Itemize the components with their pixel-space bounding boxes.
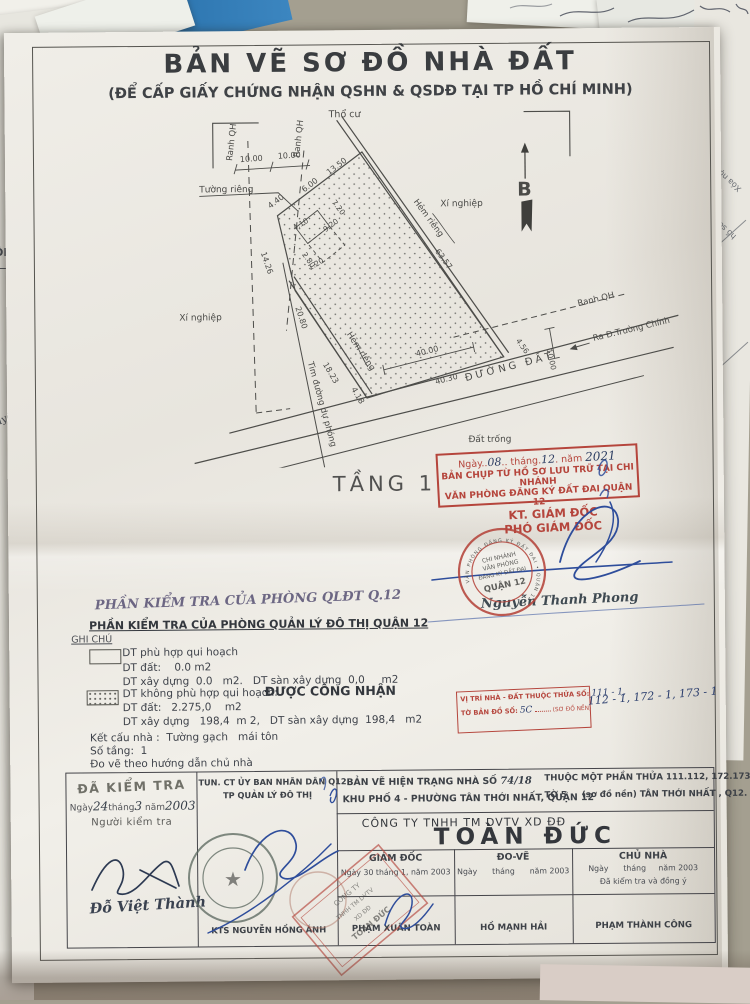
page-title: BẢN VẼ SƠ ĐỒ NHÀ ĐẤT: [34, 45, 706, 81]
inspector-name: Đỗ Việt Thành: [89, 893, 207, 917]
photo-of-land-survey-document: { "colors": {"stamp_red":"#b5453c","ink_…: [0, 0, 750, 1000]
north-label: B: [517, 179, 532, 201]
nguoi-kiem-tra-label: Người kiểm tra: [72, 817, 192, 829]
owner-name: PHẠM THÀNH CÔNG: [573, 920, 715, 931]
checked-day-handwritten: 24: [93, 799, 108, 813]
signature-table: ĐÃ KIỂM TRA Ngày24tháng3 năm2003 Người k…: [65, 767, 716, 949]
checked-month-handwritten: 3: [134, 799, 142, 813]
stamp-date-ngay: Ngày: [458, 458, 482, 470]
label-xi-nghiep-right: Xí nghiệp: [440, 198, 483, 209]
checked-year-handwritten: 2003: [165, 798, 196, 812]
svg-text:Ranh QH: Ranh QH: [577, 291, 616, 309]
bottom-right-paper: [540, 964, 750, 1004]
svg-text:10.00: 10.00: [240, 154, 263, 164]
label-dat-trong: Đất trống: [468, 434, 511, 445]
archive-stamp-box: Ngày..08.. tháng.12. năm 2021 BẢN CHỤP T…: [435, 443, 640, 507]
house-number-handwritten: 74/18: [500, 776, 532, 787]
floor-label: TẦNG 1: [333, 471, 436, 496]
legend-swatch-dotted: [87, 690, 119, 705]
legend-swatch-empty: [89, 649, 121, 664]
checked-stamp: ĐÃ KIỂM TRA: [71, 776, 192, 796]
svg-text:4.56: 4.56: [514, 337, 531, 356]
label-xi-nghiep-left: Xí nghiệp: [179, 312, 222, 323]
stamp-date-year-handwritten: 2021: [585, 448, 616, 464]
ghi-chu-label: GHI CHÚ: [71, 634, 112, 645]
main-document-sheet: BẢN VẼ SƠ ĐỒ NHÀ ĐẤT (ĐỂ CẤP GIẤY CHỨNG …: [4, 27, 728, 983]
ranh-qh-dashed-a: [248, 141, 256, 413]
so-tang-line: Số tầng: 1: [90, 745, 147, 757]
architect-name: KTS NGUYỄN HỒNG ÁNH: [200, 924, 338, 935]
stamp-date-month-handwritten: 12: [541, 453, 556, 467]
svg-text:14.26: 14.26: [259, 251, 275, 276]
svg-text:4.40: 4.40: [266, 192, 286, 210]
north-pennant-icon: [521, 200, 532, 232]
approved-text: ĐƯỢC CÔNG NHẬN: [265, 683, 396, 699]
site-plan-drawing: B Thổ cư Xí nghiệp Xí nghiệp Ranh QH Ran…: [81, 99, 704, 469]
parcel-location-box: VỊ TRÍ NHÀ - ĐẤT THUỘC THỬA SỐ: 111 - 1,…: [456, 686, 592, 734]
stamp-date-day-handwritten: 08: [487, 455, 502, 469]
company-name: TOÀN ĐỨC: [337, 822, 714, 851]
director-name: PHẠM XUÂN TOÀN: [338, 923, 455, 934]
neighbor-corner-right: [524, 111, 570, 156]
svg-text:Ranh QH: Ranh QH: [225, 123, 239, 161]
surveyor-name: HỒ MẠNH HẢI: [455, 922, 573, 933]
ket-cau-line: Kết cấu nhà : Tường gạch mái tôn: [90, 731, 278, 745]
checked-date: Ngày24tháng3 năm2003: [70, 798, 196, 813]
label-tho-cu: Thổ cư: [328, 109, 362, 120]
svg-text:18.23: 18.23: [321, 361, 340, 385]
label-tuong-rieng: Tường riêng: [198, 184, 253, 195]
label-ra-duong: Ra Đ.Trường Chính: [592, 315, 671, 344]
to-ban-do-handwritten: 5C: [520, 705, 533, 716]
svg-text:10.00: 10.00: [278, 150, 301, 160]
do-ve-line: Đo vẽ theo hướng dẫn chủ nhà: [90, 757, 253, 770]
